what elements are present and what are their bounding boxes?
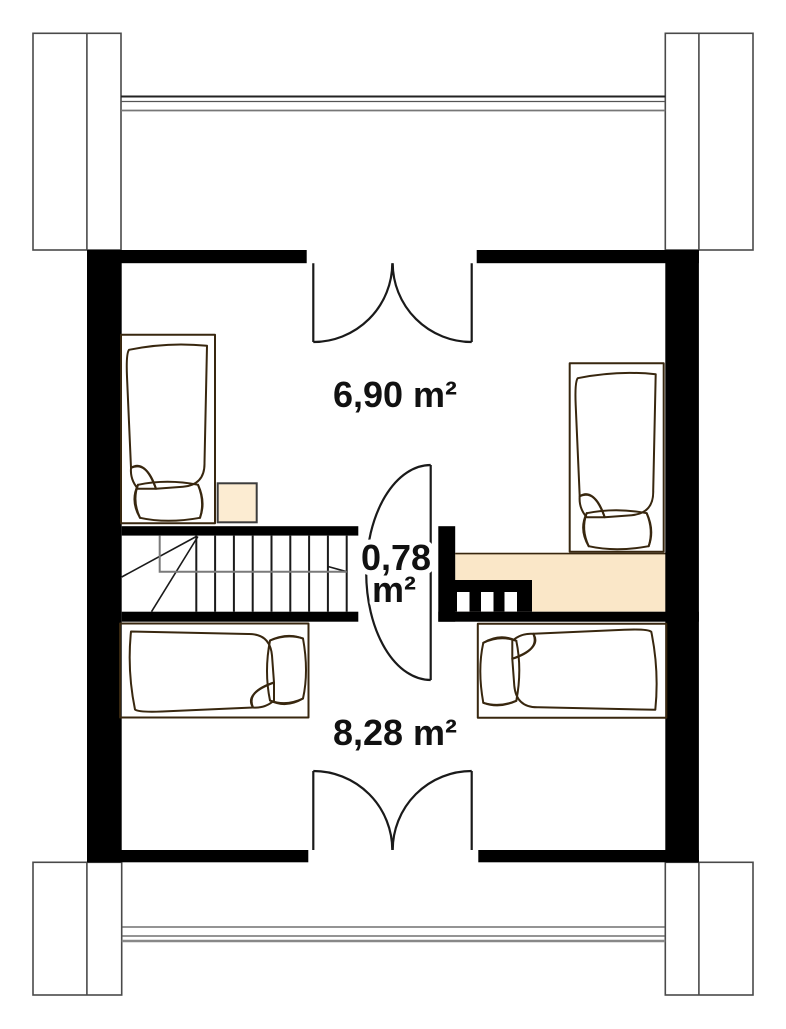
column-top-left bbox=[33, 33, 121, 250]
stair-wall-upper bbox=[122, 526, 359, 535]
door-swing-arc bbox=[313, 263, 392, 342]
bed-top-left bbox=[121, 335, 215, 524]
railing-balusters bbox=[457, 592, 517, 612]
area-label-bottom: 8,28 m² bbox=[333, 712, 457, 753]
wall-top-right-segment bbox=[477, 250, 699, 263]
bed-top-right bbox=[570, 363, 664, 552]
column-bottom-right bbox=[665, 862, 753, 995]
wall-bottom-right-segment bbox=[478, 850, 699, 862]
nightstand bbox=[218, 483, 257, 522]
double-swing-door-bottom bbox=[313, 771, 471, 850]
area-label-landing-line2: m² bbox=[372, 569, 416, 610]
railing-floor-band bbox=[438, 612, 699, 622]
double-swing-door-top bbox=[313, 263, 471, 342]
wall-right bbox=[665, 250, 699, 862]
bed-bottom-left bbox=[120, 624, 309, 718]
wall-left bbox=[87, 250, 122, 862]
column-top-right bbox=[665, 33, 753, 250]
roof-edge-lines-bottom bbox=[122, 927, 666, 941]
column-bottom-left bbox=[33, 862, 122, 995]
area-label-top: 6,90 m² bbox=[333, 374, 457, 415]
railing-gap bbox=[481, 592, 494, 612]
floor-plan-page: 6,90 m² 0,78 m² 8,28 m² bbox=[0, 0, 786, 1029]
railing-gap bbox=[505, 592, 518, 612]
bed-bottom-right bbox=[478, 624, 667, 718]
staircase bbox=[122, 536, 347, 612]
door-swing-arc bbox=[313, 771, 392, 850]
door-swing-arc bbox=[393, 263, 472, 342]
floor-plan-svg: 6,90 m² 0,78 m² 8,28 m² bbox=[0, 0, 786, 1029]
door-swing-arc bbox=[393, 771, 472, 850]
roof-edge-lines-top bbox=[121, 97, 665, 111]
wall-bottom-left-segment bbox=[87, 850, 308, 862]
stair-wall-lower bbox=[122, 612, 359, 622]
railing-gap bbox=[457, 592, 470, 612]
wall-top-left-segment bbox=[87, 250, 307, 263]
